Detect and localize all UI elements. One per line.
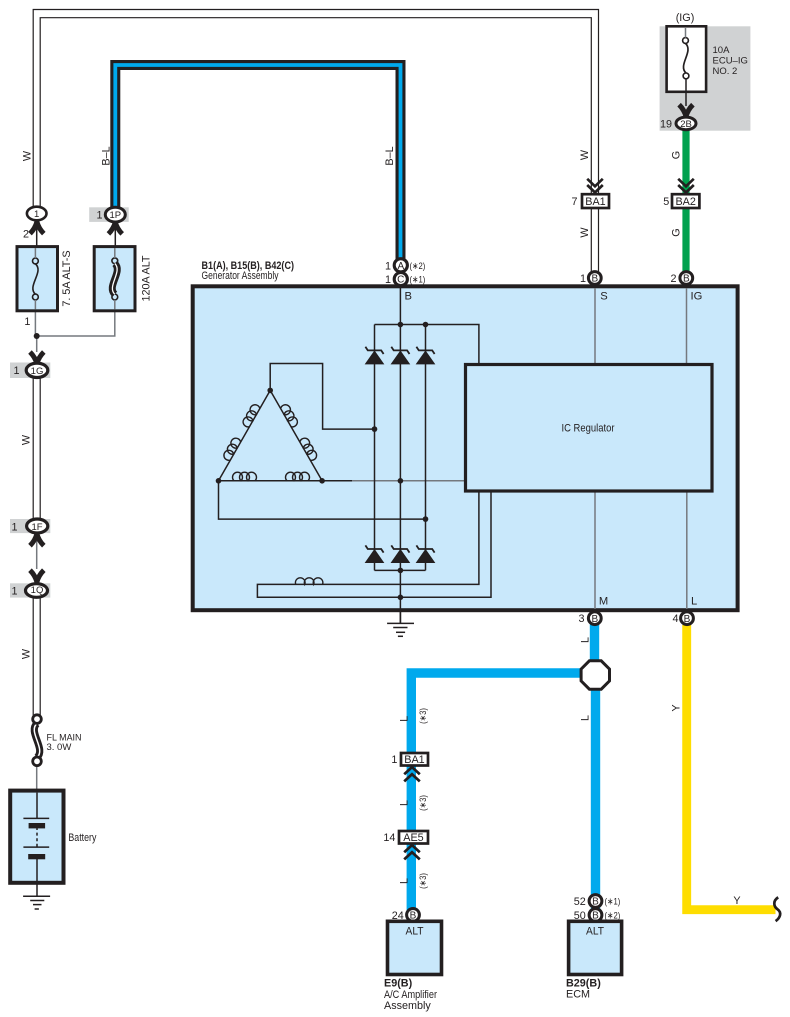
svg-text:B–L: B–L: [101, 146, 113, 165]
svg-text:G: G: [671, 151, 683, 159]
svg-text:1: 1: [580, 273, 586, 285]
svg-text:1: 1: [391, 754, 397, 766]
svg-text:(∗1): (∗1): [605, 897, 621, 908]
svg-text:NO. 2: NO. 2: [713, 66, 738, 77]
svg-text:ALT: ALT: [586, 926, 604, 938]
svg-text:L: L: [580, 637, 592, 643]
svg-text:2: 2: [23, 229, 29, 241]
svg-text:C: C: [397, 275, 404, 286]
svg-text:1P: 1P: [109, 210, 121, 221]
svg-text:Y: Y: [733, 895, 740, 907]
svg-text:19: 19: [660, 118, 672, 130]
svg-text:2B: 2B: [680, 119, 692, 130]
svg-text:1: 1: [11, 586, 17, 598]
svg-text:1: 1: [385, 274, 391, 286]
svg-text:B: B: [591, 274, 598, 285]
svg-text:W: W: [579, 149, 591, 160]
svg-text:B: B: [683, 274, 690, 285]
svg-text:IG: IG: [691, 291, 703, 303]
svg-text:1: 1: [34, 209, 39, 220]
svg-text:1: 1: [96, 210, 102, 222]
svg-text:ALT: ALT: [406, 926, 424, 938]
svg-text:W: W: [21, 434, 33, 445]
svg-text:B: B: [591, 614, 598, 625]
svg-text:A: A: [397, 261, 404, 272]
svg-text:(∗3): (∗3): [418, 795, 429, 811]
svg-text:L: L: [399, 716, 411, 722]
svg-text:E9(B): E9(B): [384, 978, 413, 990]
svg-text:14: 14: [383, 832, 395, 844]
svg-text:Assembly: Assembly: [384, 1000, 431, 1012]
svg-text:M: M: [599, 595, 608, 607]
svg-text:ECU–IG: ECU–IG: [713, 56, 748, 67]
svg-text:7. 5A ALT-S: 7. 5A ALT-S: [61, 250, 73, 306]
svg-text:(∗3): (∗3): [418, 873, 429, 889]
svg-text:(∗2): (∗2): [410, 261, 426, 272]
svg-text:3. 0W: 3. 0W: [47, 742, 72, 753]
svg-text:G: G: [671, 228, 683, 236]
svg-text:1G: 1G: [31, 366, 44, 377]
svg-text:1: 1: [11, 522, 17, 534]
svg-text:Battery: Battery: [68, 832, 96, 844]
svg-text:S: S: [600, 291, 607, 303]
svg-text:1: 1: [385, 260, 391, 272]
svg-text:BA1: BA1: [585, 196, 605, 208]
svg-text:3: 3: [578, 613, 584, 625]
svg-text:Y: Y: [670, 704, 682, 711]
svg-text:(∗1): (∗1): [410, 275, 426, 286]
svg-text:10A: 10A: [713, 45, 731, 56]
svg-text:Generator Assembly: Generator Assembly: [202, 270, 279, 282]
svg-text:(∗3): (∗3): [418, 708, 429, 724]
svg-text:BA2: BA2: [675, 196, 695, 208]
svg-text:7: 7: [571, 196, 577, 208]
svg-text:5: 5: [663, 196, 669, 208]
svg-text:L: L: [691, 595, 697, 607]
svg-text:2: 2: [670, 273, 676, 285]
svg-text:W: W: [22, 150, 34, 161]
svg-text:W: W: [21, 648, 33, 659]
svg-text:IC Regulator: IC Regulator: [562, 423, 615, 435]
svg-text:L: L: [580, 715, 592, 721]
svg-text:AE5: AE5: [403, 832, 423, 844]
svg-text:ECM: ECM: [566, 989, 590, 1001]
svg-text:B–L: B–L: [384, 146, 396, 165]
svg-text:B: B: [592, 897, 599, 908]
svg-text:1: 1: [13, 365, 19, 377]
svg-text:B: B: [405, 291, 412, 303]
svg-text:4: 4: [672, 613, 678, 625]
svg-text:W: W: [579, 227, 591, 238]
svg-text:L: L: [399, 800, 411, 806]
svg-text:BA1: BA1: [404, 754, 424, 766]
svg-text:(IG): (IG): [676, 12, 695, 24]
svg-text:B: B: [684, 614, 691, 625]
svg-text:1: 1: [24, 316, 30, 328]
svg-text:120A ALT: 120A ALT: [141, 255, 153, 301]
svg-text:1F: 1F: [31, 522, 42, 533]
svg-text:1Q: 1Q: [31, 585, 44, 596]
svg-text:L: L: [399, 878, 411, 884]
svg-text:52: 52: [574, 896, 586, 908]
